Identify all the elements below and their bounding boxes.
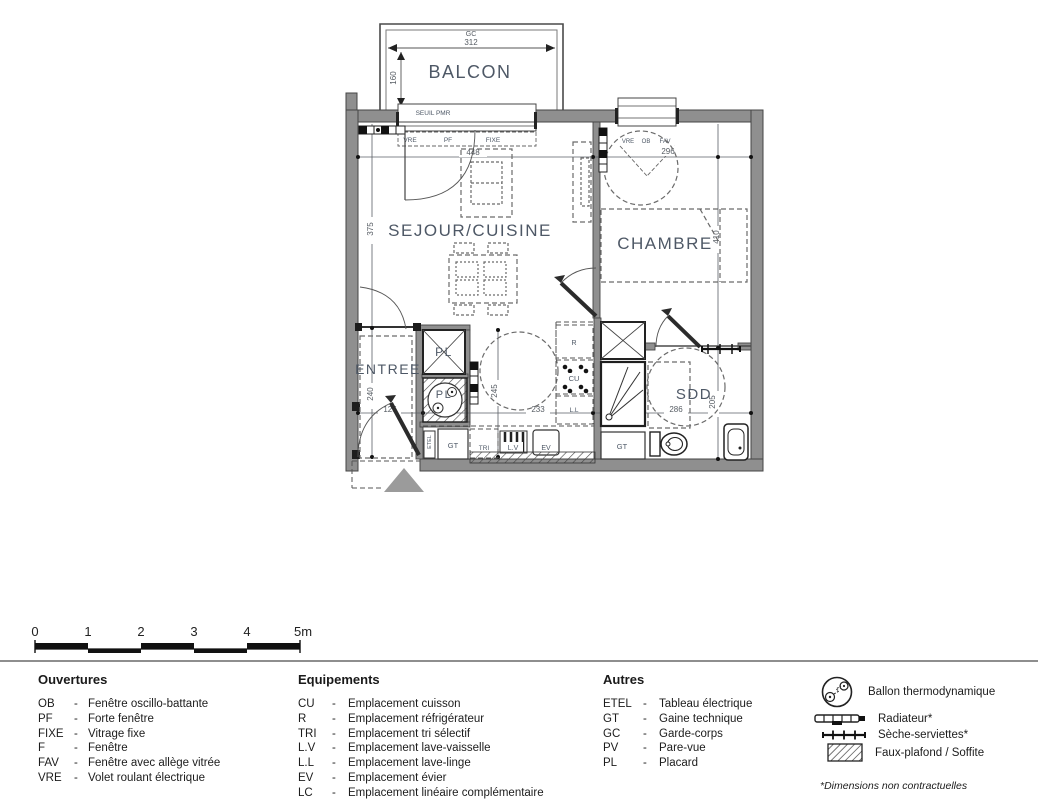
radiator-kitchen-icon [470,362,478,404]
dim-296: 296 [661,147,675,156]
faux-plafond-icon [827,743,863,762]
legend-item: F-Fenêtre [38,741,220,756]
vre2-label: VRE [622,139,634,145]
dim-160: 160 [389,71,398,85]
fixe-label: FIXE [486,137,501,144]
dim-240: 240 [366,387,375,401]
legend-item: R-Emplacement réfrigérateur [298,712,544,727]
legend-item: PL-Placard [603,756,752,771]
scale-5m: 5m [294,624,312,639]
washbasin-icon [724,424,748,460]
label-etel: ETEL [427,435,433,449]
legend-autres: Autres ETEL-Tableau électrique GT-Gaine … [603,672,752,771]
legend-item: PF-Forte fenêtre [38,712,220,727]
legend-item: OB-Fenêtre oscillo-battante [38,697,220,712]
scale-bar: 0 1 2 3 4 5m [31,624,312,653]
chambre-window: VRE OB FAV [615,98,679,176]
legend-faux-plafond: Faux-plafond / Soffite [827,743,984,762]
legend-item: PV-Pare-vue [603,741,752,756]
dim-arrow [388,44,397,52]
scale-4: 4 [243,624,250,639]
scale-0: 0 [31,624,38,639]
dim-arrow [546,44,555,52]
radiator-chambre-icon [599,128,607,172]
legend-item: CU-Emplacement cuisson [298,697,544,712]
balcony: GC 312 160 BALCON [380,24,563,110]
legend-autres-title: Autres [603,672,752,687]
legend-item: GC-Garde-corps [603,727,752,742]
sink-icon: EV [533,430,559,455]
seche-serviettes-icon [822,728,866,742]
scale-1: 1 [84,624,91,639]
legend-item: LC-Emplacement linéaire complémentaire [298,786,544,800]
legend-item: FAV-Fenêtre avec allège vitrée [38,756,220,771]
label-lv: L.V [508,445,519,452]
radiateur-icon [814,712,866,726]
scale-3: 3 [190,624,197,639]
legend-seche-serviettes: Sèche-serviettes* [822,728,968,742]
seuil-pmr-label: SEUIL PMR [416,110,451,117]
legend-item: FIXE-Vitrage fixe [38,727,220,742]
label-cu: CU [569,374,580,383]
legend-item: TRI-Emplacement tri sélectif [298,727,544,742]
label-ev: EV [541,445,551,452]
scale-2: 2 [137,624,144,639]
radiator-sejour-icon [359,126,405,134]
soffit-strip [470,452,595,463]
page: GC 312 160 BALCON SEUI [0,0,1038,800]
legend-equipements-title: Equipements [298,672,544,687]
legend-ouvertures-title: Ouvertures [38,672,220,687]
label-r: R [571,340,576,347]
dim-233: 233 [531,405,545,414]
legend-item: VRE-Volet roulant électrique [38,771,220,786]
balcony-door-window: SEUIL PMR VRE PF FIXE [396,104,537,146]
room-sdd: SDD [676,386,712,403]
dimension-nodes [356,155,753,461]
label-gt-left: GT [448,441,459,450]
label-pl-ballon: PL [436,389,452,401]
entry-threshold [352,461,424,492]
toilet-icon [650,432,687,456]
ballon-placard: PL [423,378,467,422]
legend-radiateur: Radiateur* [814,712,932,726]
dim-312: 312 [464,38,478,47]
room-balcon: BALCON [428,62,511,82]
room-sejour: SEJOUR/CUISINE [388,221,552,240]
legend-equipements: Equipements CU-Emplacement cuisson R-Emp… [298,672,544,800]
shower [601,362,645,426]
legend-item: GT-Gaine technique [603,712,752,727]
label-ll: L.L [569,407,578,414]
ob-label: OB [642,139,651,145]
pf-label: PF [444,137,452,144]
sdd-zone: GT [601,322,748,460]
dimensions-footnote: *Dimensions non contractuelles [820,780,967,792]
label-gt-right: GT [617,442,628,451]
floor-plan: GC 312 160 BALCON SEUI [0,0,1038,666]
dishwasher-icon: L.V [500,431,527,453]
legend-item: EV-Emplacement évier [298,771,544,786]
legend-item: L.L-Emplacement lave-linge [298,756,544,771]
legend-ballon: Ballon thermodynamique [818,673,995,711]
dim-245: 245 [490,384,499,398]
dim-gc: GC [466,31,477,38]
ballon-thermodynamique-icon [818,673,856,711]
label-tri: TRI [479,445,490,452]
legend-item: ETEL-Tableau électrique [603,697,752,712]
label-pl-top: PL [435,345,453,359]
room-chambre: CHAMBRE [617,234,713,253]
entrance-marker [384,468,424,492]
legend-ouvertures: Ouvertures OB-Fenêtre oscillo-battante P… [38,672,220,786]
room-entree: ENTREE [355,361,421,377]
legend-item: L.V-Emplacement lave-vaisselle [298,741,544,756]
dim-375: 375 [366,222,375,236]
entree-zone: PL PL ETEL GT [423,330,468,459]
dim-286: 286 [669,405,683,414]
